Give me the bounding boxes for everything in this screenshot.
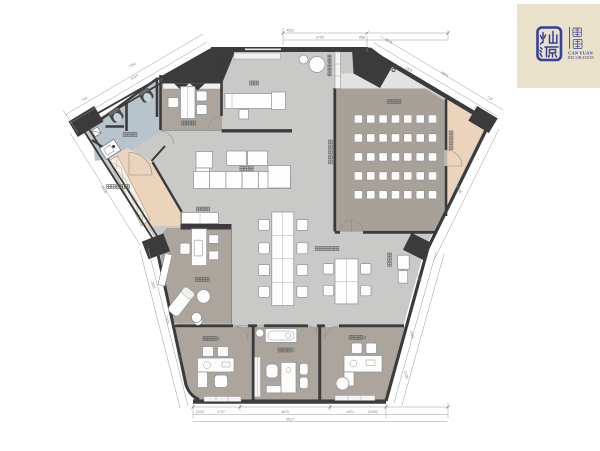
svg-text:4932: 4932 (286, 29, 294, 33)
svg-text:858: 858 (359, 36, 365, 40)
svg-text:4679: 4679 (281, 410, 289, 414)
svg-text:DECORATION: DECORATION (568, 55, 595, 60)
svg-text:1421: 1421 (346, 410, 354, 414)
svg-text:[240]: [240] (196, 410, 204, 414)
svg-text:9517: 9517 (286, 418, 294, 422)
svg-text:[2409]: [2409] (368, 410, 377, 414)
svg-text:1737: 1737 (217, 410, 225, 414)
svg-text:3765: 3765 (316, 36, 324, 40)
